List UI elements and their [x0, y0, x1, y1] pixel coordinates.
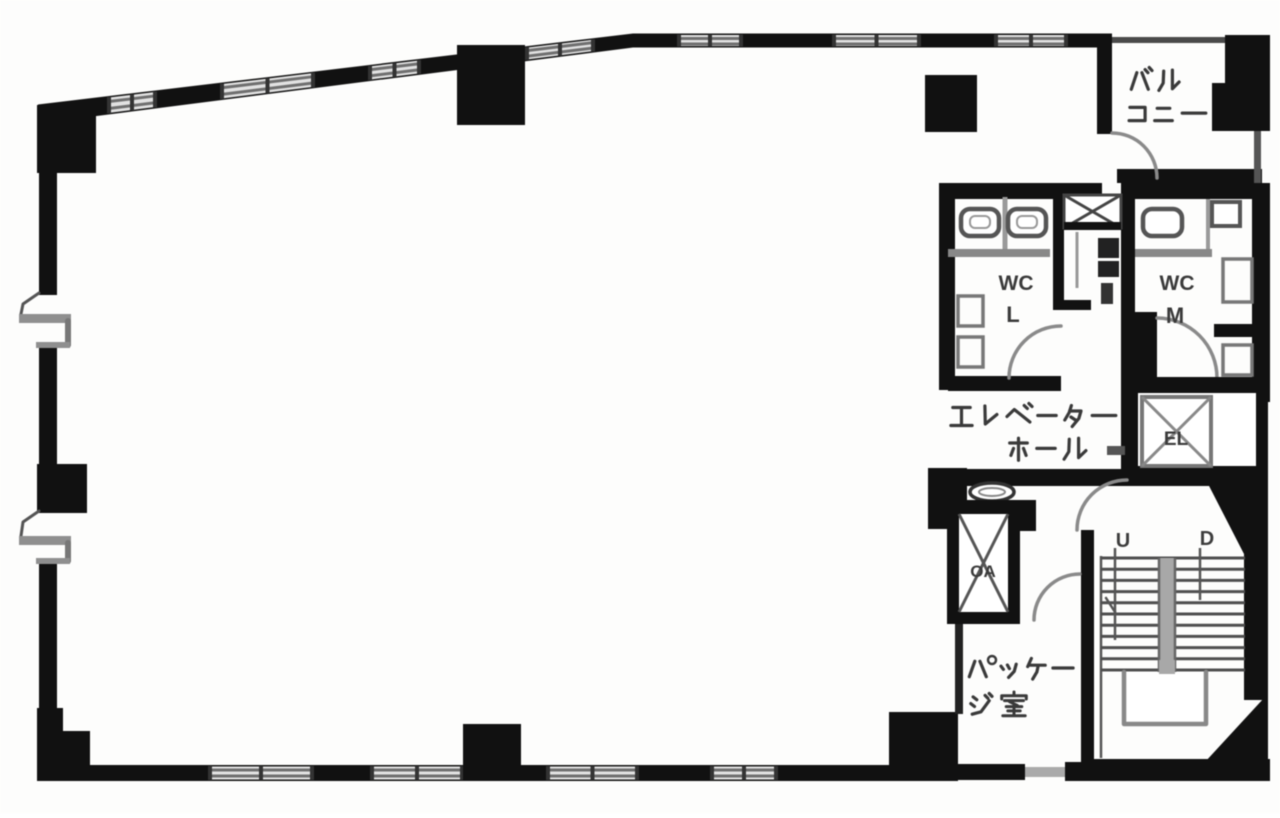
svg-text:D: D: [1200, 528, 1214, 550]
svg-text:WC: WC: [999, 272, 1034, 295]
svg-text:M: M: [1166, 303, 1184, 328]
svg-text:U: U: [1116, 530, 1130, 552]
svg-text:EL: EL: [1164, 429, 1189, 450]
svg-text:L: L: [1006, 302, 1019, 327]
svg-text:OA: OA: [970, 562, 996, 581]
svg-text:WC: WC: [1160, 272, 1195, 295]
